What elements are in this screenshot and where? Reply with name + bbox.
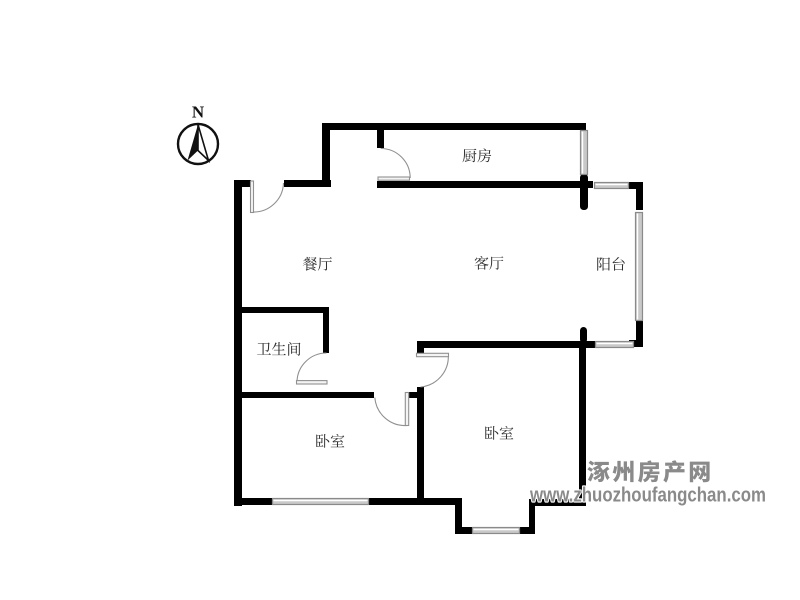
svg-text:N: N	[192, 103, 205, 122]
svg-text:www.zhuozhoufangchan.com: www.zhuozhoufangchan.com	[529, 484, 766, 507]
